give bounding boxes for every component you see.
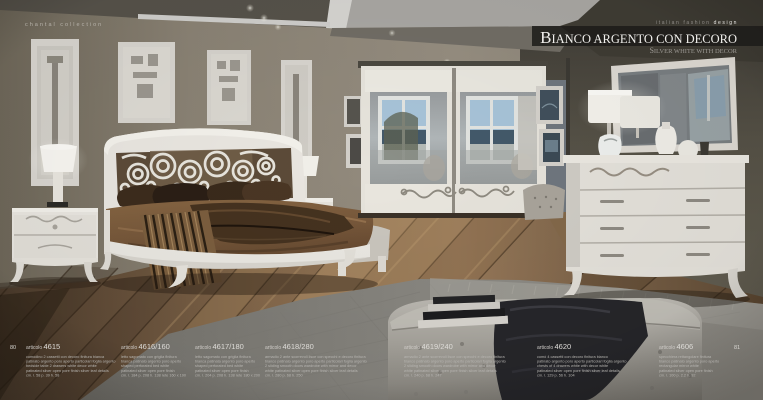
svg-text:cm. l. 184 p. 208 h. 138 rete: cm. l. 184 p. 208 h. 138 rete 160 x 190 [121,373,186,377]
svg-text:2 sliding smooth doors wardrob: 2 sliding smooth doors wardrobe with mir… [404,364,496,368]
svg-text:white patinated silver open po: white patinated silver open pore finish … [404,369,497,373]
svg-text:letto sagomato con griglia fin: letto sagomato con griglia finitura [195,355,252,359]
svg-text:cm. l. 129 p. 56 h. 104: cm. l. 129 p. 56 h. 104 [537,373,575,377]
svg-text:bianco patinato argento poro a: bianco patinato argento poro aperto part… [265,360,367,364]
svg-text:armadio 2 ante scorrevoli lisc: armadio 2 ante scorrevoli lisce con spec… [404,355,506,359]
svg-text:SILVER WHITE WITH DECOR: SILVER WHITE WITH DECOR [649,46,737,55]
svg-text:specchiera rettangolare finitu: specchiera rettangolare finitura [659,355,712,359]
svg-text:comodino 2 cassetti con decoro: comodino 2 cassetti con decoro finitura … [26,355,105,359]
svg-text:patinated silver open pore fin: patinated silver open pore finish [121,369,175,373]
svg-text:bedside table 2 drawers white: bedside table 2 drawers white decor whit… [26,364,97,368]
svg-text:chantal collection: chantal collection [25,22,103,28]
svg-text:letto sagomato con griglia fin: letto sagomato con griglia finitura [121,355,178,359]
svg-text:armadio 2 ante scorrevoli lisc: armadio 2 ante scorrevoli lisce con spec… [265,355,367,359]
svg-text:bianco patinato argento poro a: bianco patinato argento poro aperto part… [404,360,506,364]
svg-text:patinated silver open pore fin: patinated silver open pore finish silver… [26,369,109,373]
svg-text:rectangular mirror white: rectangular mirror white [659,364,699,368]
svg-text:bianca patinata argento poro a: bianca patinata argento poro aperto [195,360,255,364]
svg-text:white patinated silver open po: white patinated silver open pore finish … [265,369,358,373]
svg-text:patinated silver open pore fin: patinated silver open pore finish [195,369,249,373]
svg-text:cm. l. 100 p. 2.2 h. 92: cm. l. 100 p. 2.2 h. 92 [659,373,696,377]
svg-text:patinato argento poro aperto p: patinato argento poro aperto particolari… [537,360,627,364]
svg-text:patinato argento poro aperto p: patinato argento poro aperto particolari… [26,360,116,364]
svg-text:italian fashion design: italian fashion design [656,20,738,26]
svg-text:shaped perforated bed white: shaped perforated bed white [195,364,243,368]
svg-text:81: 81 [734,345,740,351]
svg-text:chests of 4 drawers white with: chests of 4 drawers white with decor whi… [537,364,608,368]
svg-text:comò 4 cassetti con decoro fin: comò 4 cassetti con decoro finitura bian… [537,355,608,359]
svg-text:bianca patinato argento poro a: bianca patinato argento poro aperto [121,360,181,364]
svg-text:cm. l. 58 p. 39 h. 58: cm. l. 58 p. 39 h. 58 [26,373,59,377]
svg-text:patinated silver open pore fin: patinated silver open pore finish [659,369,713,373]
svg-text:bianco patinato argento poro a: bianco patinato argento poro aperto [659,360,719,364]
svg-text:2 sliding smooth doors wardrob: 2 sliding smooth doors wardrobe with mir… [265,364,357,368]
svg-text:80: 80 [10,345,16,351]
svg-text:cm. l. 204 p. 208 h. 138 rete: cm. l. 204 p. 208 h. 138 rete 180 x 200 [195,373,260,377]
svg-text:shaped perforated bed white: shaped perforated bed white [121,364,169,368]
svg-text:cm. l. 280 p. 68 h. 250: cm. l. 280 p. 68 h. 250 [265,373,303,377]
svg-text:patinated silver open pore fin: patinated silver open pore finish silver… [537,369,620,373]
svg-text:cm. l. 240 p. 68 h. 247: cm. l. 240 p. 68 h. 247 [404,373,442,377]
